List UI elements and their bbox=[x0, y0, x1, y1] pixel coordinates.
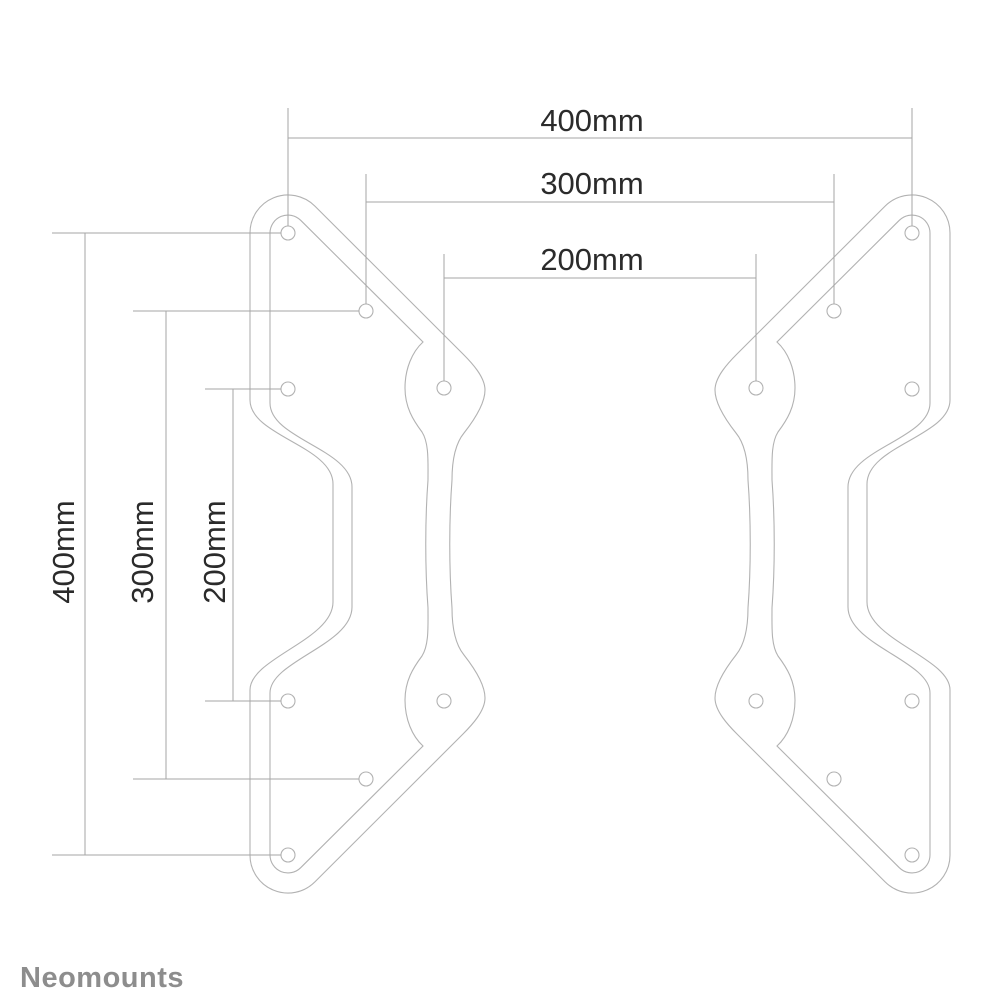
dimension-vertical-300: 300mm bbox=[125, 311, 359, 779]
left-bracket-inner-contour bbox=[270, 215, 428, 873]
mounting-hole bbox=[281, 226, 295, 240]
right-bracket-inner-contour bbox=[772, 215, 930, 873]
mounting-hole bbox=[905, 848, 919, 862]
left-bracket bbox=[250, 195, 485, 893]
mounting-hole bbox=[359, 772, 373, 786]
dimension-vertical-400: 400mm bbox=[46, 233, 281, 855]
right-bracket-outer-contour bbox=[715, 195, 950, 893]
mounting-hole bbox=[437, 381, 451, 395]
mounting-hole bbox=[827, 772, 841, 786]
right-bracket bbox=[715, 195, 950, 893]
dimension-label: 400mm bbox=[46, 500, 81, 603]
mounting-hole bbox=[749, 694, 763, 708]
drawing-canvas: 400mm 300mm 200mm 400mm 300mm 200mm Neom… bbox=[0, 0, 1004, 1004]
left-bracket-outer-contour bbox=[250, 195, 485, 893]
mounting-hole bbox=[749, 381, 763, 395]
mounting-hole bbox=[281, 694, 295, 708]
mounting-hole bbox=[905, 694, 919, 708]
neomounts-logo: Neomounts bbox=[20, 962, 184, 994]
dimension-horizontal-200: 200mm bbox=[444, 242, 756, 381]
dimension-label: 300mm bbox=[540, 166, 643, 201]
mounting-hole bbox=[905, 226, 919, 240]
dimension-drawing-svg: 400mm 300mm 200mm 400mm 300mm 200mm Neom… bbox=[0, 0, 1004, 1004]
dimension-label: 200mm bbox=[197, 500, 232, 603]
dimension-label: 200mm bbox=[540, 242, 643, 277]
mounting-hole bbox=[281, 848, 295, 862]
mounting-hole bbox=[437, 694, 451, 708]
dimension-vertical-200: 200mm bbox=[197, 389, 281, 701]
mounting-hole bbox=[281, 382, 295, 396]
mounting-hole bbox=[359, 304, 373, 318]
dimension-horizontal-300: 300mm bbox=[366, 166, 834, 304]
dimension-label: 400mm bbox=[540, 103, 643, 138]
mounting-hole bbox=[905, 382, 919, 396]
dimension-label: 300mm bbox=[125, 500, 160, 603]
mounting-hole bbox=[827, 304, 841, 318]
dimension-horizontal-400: 400mm bbox=[288, 103, 912, 226]
